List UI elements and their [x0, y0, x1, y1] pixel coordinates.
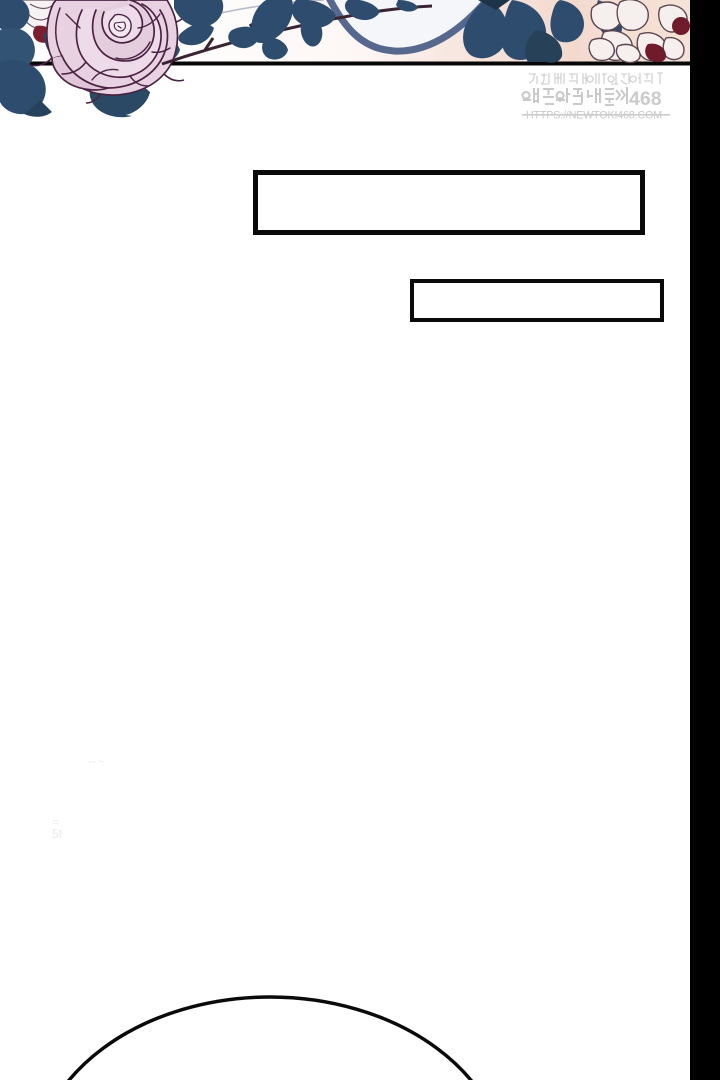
svg-text:468: 468: [629, 88, 662, 110]
